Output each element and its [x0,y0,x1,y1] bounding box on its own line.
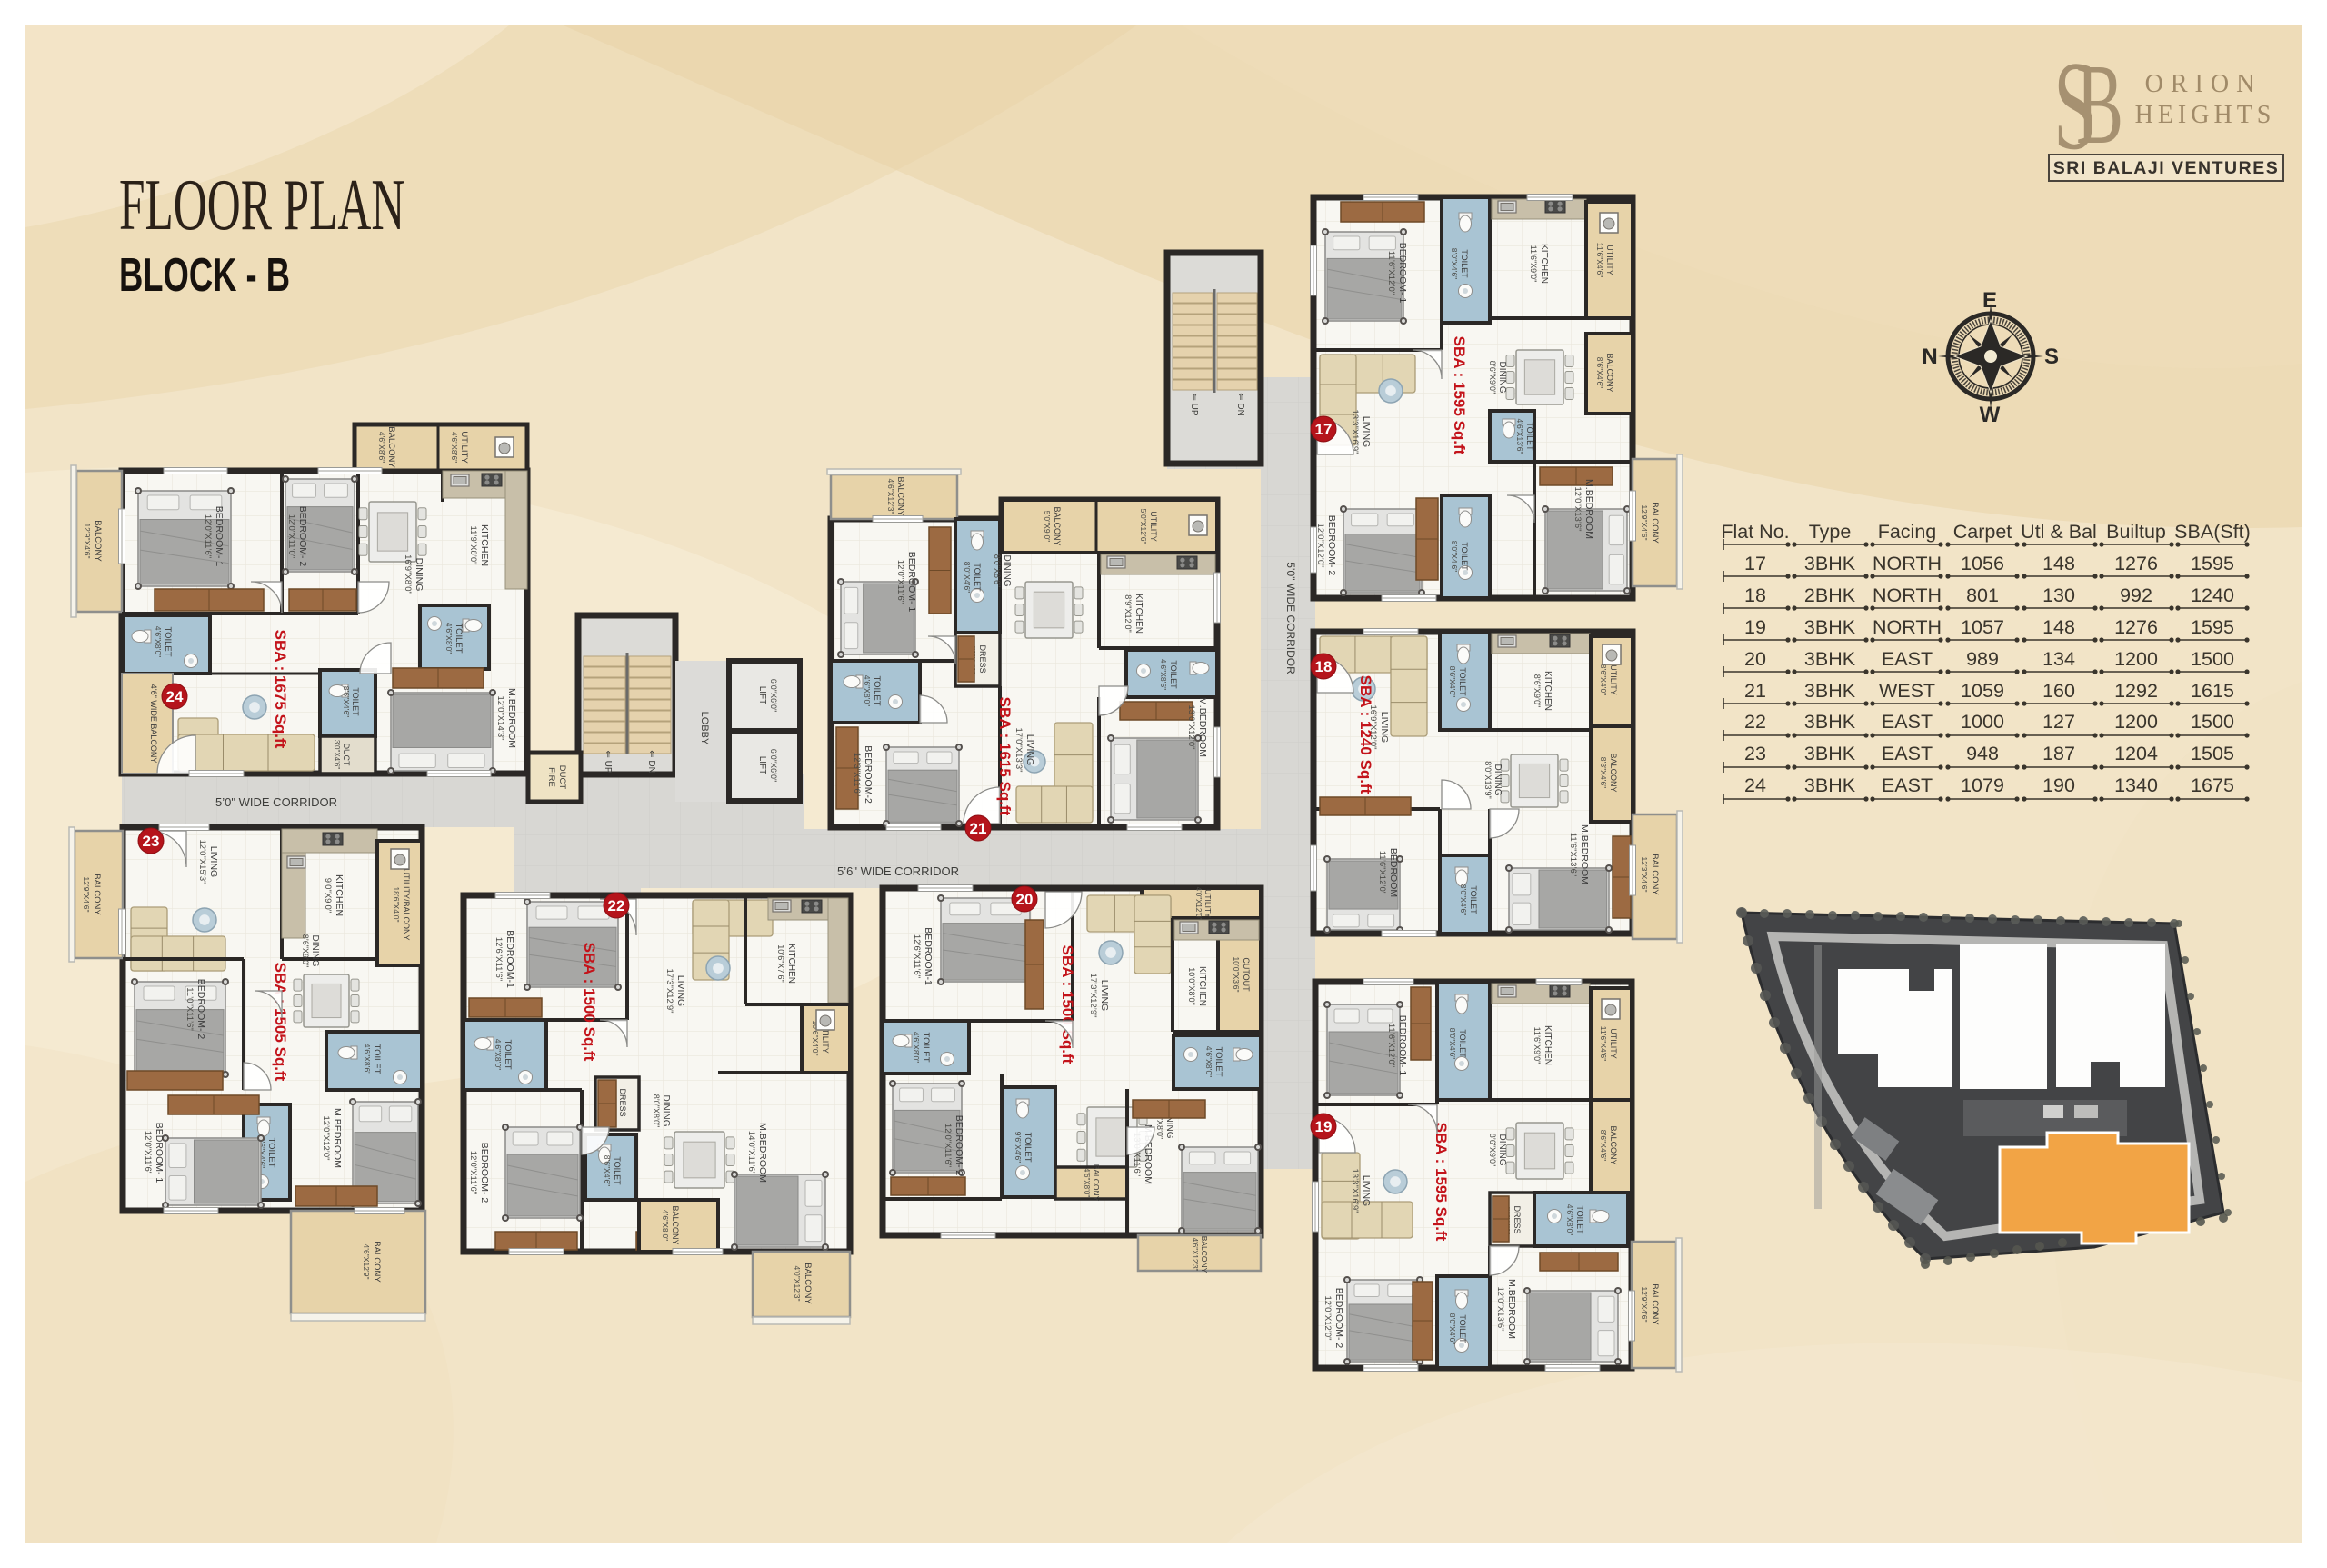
svg-text:Carpet: Carpet [1953,521,2012,543]
svg-text:23: 23 [1744,743,1766,764]
svg-text:DINING: DINING [1497,362,1507,394]
svg-text:11’6"X12’0": 11’6"X12’0" [1386,1024,1396,1067]
svg-text:8’0"X4’6": 8’0"X4’6" [1448,1313,1457,1344]
svg-text:SBA : 1500 Sq.ft: SBA : 1500 Sq.ft [1059,945,1076,1064]
svg-text:21: 21 [970,820,987,837]
svg-text:DINING: DINING [1002,555,1012,587]
svg-text:Flat No.: Flat No. [1721,521,1789,543]
svg-text:8’0"X4’6": 8’0"X4’6" [1448,1028,1457,1059]
svg-text:BEDROOM-1: BEDROOM-1 [504,930,515,988]
svg-text:TOILET: TOILET [372,1044,382,1074]
svg-text:1595: 1595 [2191,553,2234,574]
svg-text:10’0"X3’6": 10’0"X3’6" [1232,956,1241,992]
svg-text:SBA : 1615 Sq.ft: SBA : 1615 Sq.ft [996,697,1014,816]
svg-text:M.BEDROOM: M.BEDROOM [1506,1279,1517,1339]
svg-text:17’0"X13’3": 17’0"X13’3" [1014,727,1024,772]
svg-text:TOILET: TOILET [1460,249,1469,278]
svg-text:11’6"X4’6": 11’6"X4’6" [1599,1026,1608,1062]
svg-text:⇐ UP: ⇐ UP [603,750,613,773]
svg-text:4’6"X12’9": 4’6"X12’9" [362,1243,371,1279]
svg-text:HEIGHTS: HEIGHTS [2135,101,2276,129]
svg-text:⇐ UP: ⇐ UP [1189,393,1199,415]
svg-text:12’0"X11’6": 12’0"X11’6" [203,514,213,558]
svg-text:BLOCK - B: BLOCK - B [119,247,290,301]
svg-text:⇐ DN: ⇐ DN [646,750,656,774]
svg-text:12’0"X11’6": 12’0"X11’6" [143,1131,153,1174]
svg-text:BEDROOM- 2: BEDROOM- 2 [1333,1288,1344,1349]
svg-text:BEDROOM-2: BEDROOM-2 [863,745,874,804]
svg-text:DUCT: DUCT [342,744,351,766]
svg-text:134: 134 [2042,648,2075,670]
svg-text:17’3"X12’9": 17’3"X12’9" [1088,973,1098,1017]
svg-text:127: 127 [2042,711,2075,733]
svg-text:KITCHEN: KITCHEN [1134,594,1144,634]
svg-text:12’9"X4’6": 12’9"X4’6" [82,876,91,912]
svg-text:E: E [1982,288,1997,313]
svg-text:992: 992 [2120,584,2152,606]
svg-text:DINING: DINING [310,935,320,967]
svg-text:BALCONY: BALCONY [1053,506,1062,545]
svg-text:Utl & Bal: Utl & Bal [2021,521,2097,543]
svg-text:TOILET: TOILET [1458,1029,1467,1058]
svg-text:BEDROOM- 1: BEDROOM- 1 [1397,243,1408,304]
svg-text:24: 24 [1744,774,1766,796]
svg-text:18: 18 [1744,584,1766,606]
svg-text:Type: Type [1809,521,1852,543]
svg-text:⇐ DN: ⇐ DN [1235,393,1245,416]
svg-text:17’3"X12’9": 17’3"X12’9" [664,968,674,1013]
svg-text:148: 148 [2042,616,2075,638]
svg-text:13’3"X16’9": 13’3"X16’9" [1350,1168,1360,1213]
svg-text:8’6"X4’6": 8’6"X4’6" [1448,666,1457,697]
svg-text:TOILET: TOILET [921,1032,931,1062]
svg-text:Builtup: Builtup [2106,521,2166,543]
svg-text:11’0"X11’6": 11’0"X11’6" [185,987,195,1031]
svg-text:1240: 1240 [2191,584,2234,606]
svg-text:BALCONY: BALCONY [671,1205,680,1244]
svg-text:BALCONY: BALCONY [1650,854,1660,895]
svg-text:18’6"X4’0": 18’6"X4’0" [392,886,401,922]
svg-text:SBA : 1505 Sq.ft: SBA : 1505 Sq.ft [272,963,289,1082]
svg-text:ORION: ORION [2145,70,2262,98]
svg-text:4’6"X8’0": 4’6"X8’0" [154,626,163,657]
svg-text:FIRE: FIRE [546,767,556,787]
svg-text:LIVING: LIVING [1099,980,1110,1011]
svg-text:LIVING: LIVING [1361,416,1372,447]
svg-text:8’6"X9’0": 8’6"X9’0" [1488,361,1497,394]
svg-text:19: 19 [1744,616,1766,638]
svg-text:LIVING: LIVING [1379,712,1390,743]
svg-text:TOILET: TOILET [1458,1314,1467,1343]
svg-text:12’6"X11’6": 12’6"X11’6" [912,934,922,978]
svg-text:11’6"X13’6": 11’6"X13’6" [1568,833,1578,876]
svg-text:3BHK: 3BHK [1804,743,1856,764]
svg-text:BALCONY: BALCONY [93,520,103,562]
svg-text:21: 21 [1744,680,1766,702]
svg-text:4’6"X8’0": 4’6"X8’0" [661,1210,670,1241]
svg-text:12’0"X11’6": 12’0"X11’6" [468,1151,478,1194]
svg-text:TOILET: TOILET [351,687,360,716]
svg-text:12’9"X4’6": 12’9"X4’6" [1640,504,1649,540]
svg-text:KITCHEN: KITCHEN [1543,671,1553,711]
svg-text:148: 148 [2042,553,2075,574]
svg-text:11’6"X12’0": 11’6"X12’0" [1386,251,1396,295]
svg-text:1615: 1615 [2191,680,2234,702]
svg-text:LOBBY: LOBBY [699,712,710,745]
svg-text:BALCONY: BALCONY [92,874,102,915]
svg-text:BEDROOM: BEDROOM [1388,848,1399,897]
svg-text:3BHK: 3BHK [1804,616,1856,638]
svg-text:1200: 1200 [2114,648,2158,670]
svg-text:KITCHEN: KITCHEN [1197,966,1207,1006]
svg-text:KITCHEN: KITCHEN [479,524,490,566]
svg-text:BEDROOM- 2: BEDROOM- 2 [479,1143,490,1203]
svg-text:11’6"X9’0": 11’6"X9’0" [1533,1027,1542,1064]
svg-text:TOILET: TOILET [1460,542,1469,571]
svg-text:4’6"X8’6": 4’6"X8’6" [450,432,459,463]
svg-text:8’3"X4’6": 8’3"X4’6" [1599,757,1608,788]
svg-text:TOILET: TOILET [454,623,464,653]
svg-text:KITCHEN: KITCHEN [334,874,345,916]
svg-text:B: B [2076,41,2123,167]
svg-text:948: 948 [1966,743,1999,764]
svg-text:TOILET: TOILET [1169,660,1178,689]
svg-text:4’0"X12’3": 4’0"X12’3" [793,1265,802,1301]
svg-text:10’0"X8’0": 10’0"X8’0" [1187,967,1196,1004]
svg-text:W: W [1980,403,2001,427]
svg-text:UTILITY: UTILITY [1149,511,1158,542]
svg-text:BEDROOM- 1: BEDROOM- 1 [1397,1015,1408,1076]
svg-text:BEDROOM- 1: BEDROOM- 1 [214,506,225,567]
svg-text:20: 20 [1744,648,1766,670]
svg-text:EAST: EAST [1882,648,1933,670]
svg-text:130: 130 [2042,584,2075,606]
svg-text:DINING: DINING [414,558,424,592]
svg-text:SBA : 1595 Sq.ft: SBA : 1595 Sq.ft [1433,1123,1450,1242]
svg-text:TOILET: TOILET [973,563,982,592]
svg-text:1079: 1079 [1961,774,2004,796]
svg-text:12’9"X4’6": 12’9"X4’6" [83,523,92,558]
svg-text:4’6"X13’6": 4’6"X13’6" [1515,418,1524,454]
svg-text:13’0"X12’0": 13’0"X12’0" [1186,704,1196,749]
svg-text:LIFT: LIFT [757,686,767,705]
svg-text:6’0"X6’0": 6’0"X6’0" [769,679,778,712]
svg-text:M.BEDROOM: M.BEDROOM [757,1123,768,1183]
svg-text:TOILET: TOILET [1469,885,1478,914]
svg-text:801: 801 [1966,584,1999,606]
svg-text:TOILET: TOILET [1213,1046,1223,1076]
svg-text:FLOOR PLAN: FLOOR PLAN [119,165,404,245]
svg-text:12’3"X11’6": 12’3"X11’6" [852,753,862,796]
svg-text:LIVING: LIVING [208,846,219,877]
svg-text:4’0"X12’0": 4’0"X12’0" [1194,887,1203,921]
svg-text:4’6"X8’0": 4’6"X8’0" [494,1039,503,1070]
svg-text:5’0" WIDE CORRIDOR: 5’0" WIDE CORRIDOR [215,795,337,809]
svg-text:9’0"X9’0": 9’0"X9’0" [323,878,333,913]
svg-text:4’6" WIDE BALCONY: 4’6" WIDE BALCONY [149,684,158,764]
svg-text:TOILET: TOILET [872,675,882,705]
svg-text:3BHK: 3BHK [1804,680,1856,702]
svg-text:LIVING: LIVING [1024,734,1035,765]
svg-text:BALCONY: BALCONY [386,426,396,468]
svg-text:14’0"X11’6": 14’0"X11’6" [746,1131,756,1174]
svg-text:8’6"X9’0": 8’6"X9’0" [1533,674,1542,707]
svg-text:6’0"X6’0": 6’0"X6’0" [769,749,778,782]
svg-text:BEDROOM- 2: BEDROOM- 2 [954,1115,964,1176]
svg-text:12’3"X4’6": 12’3"X4’6" [1640,856,1649,892]
svg-text:3BHK: 3BHK [1804,553,1856,574]
svg-text:20: 20 [1016,891,1034,908]
svg-text:DINING: DINING [1493,764,1503,796]
svg-text:12’0"X13’6": 12’0"X13’6" [1495,1286,1505,1331]
svg-text:1340: 1340 [2114,774,2158,796]
svg-text:4’6"X12’3": 4’6"X12’3" [1191,1238,1199,1272]
svg-text:1200: 1200 [2114,711,2158,733]
svg-text:1500: 1500 [2191,648,2234,670]
svg-text:4’6"X8’0": 4’6"X8’0" [1565,1204,1574,1235]
svg-text:8’0"X8’0": 8’0"X8’0" [652,1094,661,1127]
svg-text:3BHK: 3BHK [1804,648,1856,670]
svg-text:Facing: Facing [1878,521,1937,543]
svg-text:4’6"X8’0": 4’6"X8’0" [912,1032,921,1063]
svg-text:2BHK: 2BHK [1804,584,1856,606]
svg-text:8’6"X9’0": 8’6"X9’0" [1488,1134,1497,1166]
svg-text:UTILITY: UTILITY [1605,245,1614,275]
svg-text:SBA : 1675 Sq.ft: SBA : 1675 Sq.ft [272,630,289,749]
svg-text:19: 19 [1315,1118,1333,1135]
svg-text:TOILET: TOILET [163,626,173,656]
svg-text:12’6"X11’6": 12’6"X11’6" [494,937,504,981]
svg-text:8’0"X4’6": 8’0"X4’6" [963,562,972,593]
svg-text:17: 17 [1315,421,1333,438]
svg-text:1000: 1000 [1961,711,2004,733]
svg-text:SBA : 1240 Sq.ft: SBA : 1240 Sq.ft [1357,675,1374,794]
svg-text:12’0"X13’6": 12’0"X13’6" [1573,486,1583,531]
svg-text:BALCONY: BALCONY [372,1241,382,1283]
svg-text:DUCT: DUCT [557,765,567,790]
svg-text:EAST: EAST [1882,743,1933,764]
svg-text:S: S [2044,345,2059,369]
svg-text:8’0"X4’6": 8’0"X4’6" [1450,248,1459,279]
svg-text:10’6"X7’6": 10’6"X7’6" [776,944,785,982]
svg-text:11’6"X4’6": 11’6"X4’6" [1595,243,1604,278]
svg-text:TOILET: TOILET [266,1137,276,1167]
svg-text:12’0"X11’0": 12’0"X11’0" [286,514,296,558]
svg-text:BALCONY: BALCONY [1200,1236,1209,1273]
svg-text:KITCHEN: KITCHEN [786,944,796,984]
svg-text:M.BEDROOM: M.BEDROOM [506,688,517,748]
svg-text:UTILITY/BALCONY: UTILITY/BALCONY [402,868,411,940]
svg-text:M.BEDROOM: M.BEDROOM [1583,479,1594,539]
svg-text:TOILET: TOILET [613,1156,622,1185]
svg-text:5’0"X9’0": 5’0"X9’0" [1043,511,1052,542]
svg-text:DINING: DINING [661,1095,671,1127]
svg-text:KITCHEN: KITCHEN [1539,244,1549,284]
svg-text:8’6"X4’0": 8’6"X4’0" [1599,664,1608,695]
svg-text:1056: 1056 [1961,553,2004,574]
svg-text:8’0"X4’6": 8’0"X4’6" [1450,541,1459,572]
svg-text:4’6"X8’0": 4’6"X8’0" [1083,1168,1091,1198]
svg-text:TOILET: TOILET [1525,422,1534,451]
svg-text:CUTOUT: CUTOUT [1242,957,1251,992]
svg-text:1292: 1292 [2114,680,2158,702]
svg-text:BALCONY: BALCONY [1650,502,1660,544]
svg-text:BALCONY: BALCONY [1092,1164,1101,1202]
svg-text:4’6"X8’6": 4’6"X8’6" [363,1044,372,1074]
svg-text:8’0"X13’9": 8’0"X13’9" [1483,761,1493,798]
svg-text:8’6"X4’6": 8’6"X4’6" [1599,1130,1608,1161]
svg-text:UTILITY: UTILITY [1609,664,1618,695]
svg-text:4’6"X12’3": 4’6"X12’3" [886,478,895,514]
svg-text:BEDROOM- 2: BEDROOM- 2 [297,506,308,567]
svg-text:22: 22 [608,897,625,914]
svg-text:M.BEDROOM: M.BEDROOM [332,1108,343,1168]
svg-text:LIVING: LIVING [675,975,686,1006]
svg-text:8’9"X12’0": 8’9"X12’0" [1124,594,1133,632]
svg-text:190: 190 [2042,774,2075,796]
svg-text:BALCONY: BALCONY [1605,353,1614,392]
svg-text:SBA : 1500 Sq.ft: SBA : 1500 Sq.ft [581,943,598,1062]
svg-text:5’6" WIDE CORRIDOR: 5’6" WIDE CORRIDOR [837,864,959,878]
svg-text:DINING: DINING [1497,1134,1507,1166]
svg-text:BEDROOM-1: BEDROOM-1 [923,927,934,985]
svg-text:TOILET: TOILET [503,1039,513,1069]
svg-text:1059: 1059 [1961,680,2004,702]
svg-text:UTILITY: UTILITY [1609,1028,1618,1059]
svg-text:12’0"X11’6": 12’0"X11’6" [943,1124,953,1167]
svg-text:8’0"X8’6": 8’0"X8’6" [993,554,1002,587]
svg-text:989: 989 [1966,648,1999,670]
svg-text:DRESS: DRESS [978,644,987,673]
svg-text:TOILET: TOILET [1023,1132,1033,1162]
svg-text:8’6"X4’6": 8’6"X4’6" [1595,357,1604,388]
svg-text:BEDROOM- 2: BEDROOM- 2 [1326,515,1337,576]
svg-text:BALCONY: BALCONY [803,1263,813,1304]
svg-text:187: 187 [2042,743,2075,764]
svg-text:16’9"X8’0": 16’9"X8’0" [403,554,413,594]
svg-text:8’6"X4’6": 8’6"X4’6" [603,1155,612,1186]
svg-text:NORTH: NORTH [1873,553,1942,574]
svg-text:SRI BALAJI VENTURES: SRI BALAJI VENTURES [2053,158,2279,178]
svg-text:1204: 1204 [2114,743,2158,764]
svg-text:BEDROOM- 1: BEDROOM- 1 [906,552,917,613]
svg-text:NORTH: NORTH [1873,584,1942,606]
svg-text:BEDROOM- 1: BEDROOM- 1 [154,1123,165,1183]
svg-text:18: 18 [1315,658,1333,675]
svg-text:DRESS: DRESS [1513,1205,1522,1233]
svg-text:9’6"X4’6": 9’6"X4’6" [1014,1132,1023,1163]
svg-text:SBA : 1595 Sq.ft: SBA : 1595 Sq.ft [1451,336,1468,455]
svg-text:11’9"X8’0": 11’9"X8’0" [468,525,478,564]
svg-text:8’0"X4’6": 8’0"X4’6" [1459,884,1468,915]
svg-text:3’0"X4’6": 3’0"X4’6" [333,740,341,770]
svg-text:EAST: EAST [1882,774,1933,796]
svg-text:5’0" WIDE CORRIDOR: 5’0" WIDE CORRIDOR [1284,562,1297,674]
svg-text:1595: 1595 [2191,616,2234,638]
svg-text:LIVING: LIVING [1361,1175,1372,1206]
svg-text:3BHK: 3BHK [1804,711,1856,733]
svg-text:EAST: EAST [1882,711,1933,733]
svg-text:17: 17 [1744,553,1766,574]
svg-text:8’6"X4’6": 8’6"X4’6" [342,686,351,717]
svg-text:1675: 1675 [2191,774,2234,796]
svg-text:BEDROOM- 2: BEDROOM- 2 [195,979,206,1040]
svg-text:5’0"X12’6": 5’0"X12’6" [1139,508,1148,544]
svg-text:24: 24 [166,688,184,705]
svg-text:1276: 1276 [2114,553,2158,574]
svg-text:NORTH: NORTH [1873,616,1942,638]
svg-text:1276: 1276 [2114,616,2158,638]
svg-text:KITCHEN: KITCHEN [1543,1025,1553,1065]
svg-text:M.BEDROOM: M.BEDROOM [1197,697,1208,757]
svg-text:BALCONY: BALCONY [1609,1125,1618,1164]
svg-text:UTILITY: UTILITY [459,431,469,464]
svg-text:12’0"X11’6": 12’0"X11’6" [895,560,905,604]
svg-text:DRESS: DRESS [618,1088,627,1116]
svg-text:4’6"X8’0": 4’6"X8’0" [863,675,872,706]
svg-text:22: 22 [1744,711,1766,733]
svg-text:1057: 1057 [1961,616,2004,638]
svg-text:SBA(Sft): SBA(Sft) [2174,521,2251,543]
svg-text:BALCONY: BALCONY [1650,1283,1660,1325]
svg-text:11’6"X9’0": 11’6"X9’0" [1529,245,1538,283]
svg-text:WEST: WEST [1879,680,1935,702]
svg-text:160: 160 [2042,680,2075,702]
svg-text:12’0"X14’3": 12’0"X14’3" [495,695,505,740]
svg-text:1500: 1500 [2191,711,2234,733]
svg-text:12’0"X15’3": 12’0"X15’3" [197,839,207,884]
svg-text:BALCONY: BALCONY [896,476,905,515]
svg-text:12’9"X4’6": 12’9"X4’6" [1640,1286,1649,1322]
svg-text:UTILITY: UTILITY [1203,889,1213,918]
svg-text:11’6"X12’0": 11’6"X12’0" [1377,851,1387,894]
svg-text:23: 23 [143,833,160,850]
svg-text:N: N [1922,345,1937,369]
svg-text:12’0"X12’0": 12’0"X12’0" [1323,1295,1333,1340]
svg-text:TOILET: TOILET [1575,1205,1584,1234]
svg-text:1505: 1505 [2191,743,2234,764]
svg-text:8’6"X9’0": 8’6"X9’0" [301,934,310,967]
svg-text:4’6"X8’6": 4’6"X8’6" [377,432,386,463]
svg-text:3BHK: 3BHK [1804,774,1856,796]
svg-text:4’6"X8’0": 4’6"X8’0" [444,623,454,654]
svg-text:4’6"X8’6": 4’6"X8’6" [1159,659,1168,690]
svg-text:M.BEDROOM: M.BEDROOM [1579,824,1590,884]
svg-text:BALCONY: BALCONY [1609,753,1618,792]
svg-text:12’0"X12’0": 12’0"X12’0" [321,1115,331,1160]
svg-text:LIFT: LIFT [757,756,767,775]
svg-text:4’6"X8’0": 4’6"X8’0" [1204,1046,1213,1077]
svg-text:TOILET: TOILET [1458,667,1467,696]
